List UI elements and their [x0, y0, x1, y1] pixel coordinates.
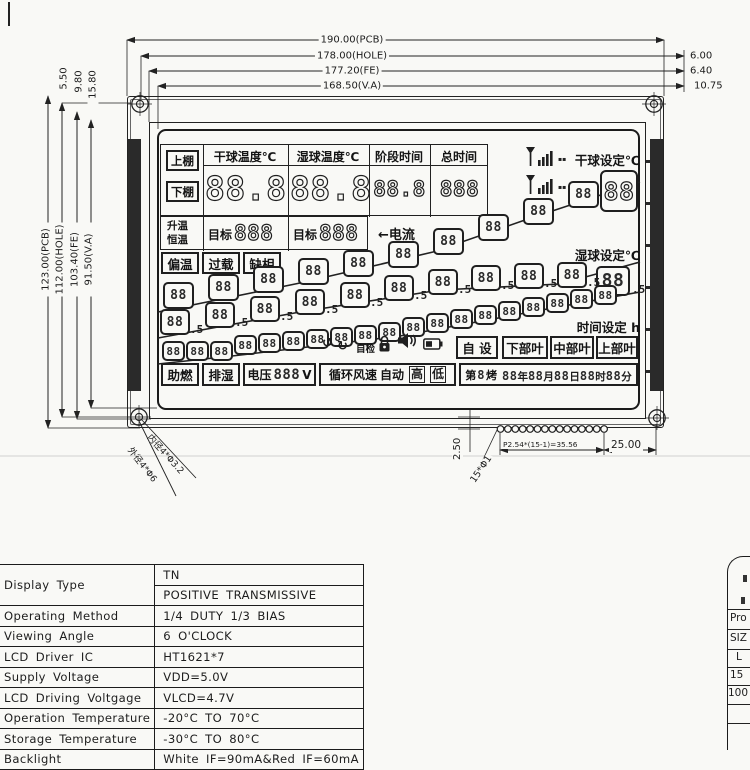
spec-row: Viewing Angle6 O'CLOCK: [0, 626, 363, 647]
dim-pin-gap: 2.50: [452, 436, 463, 462]
row-line: [728, 704, 750, 705]
stage-value-box: 88: [186, 341, 209, 361]
side-table-fragment: Pro: [730, 612, 747, 624]
dim-offset-1: 6.00: [688, 51, 714, 62]
fan-low-badge: 低: [430, 366, 446, 382]
voltage-readout: 电压 888 V: [243, 363, 316, 386]
cut-text-fragment: [743, 575, 747, 582]
dim-va-height: 91.50(V.A): [84, 223, 95, 297]
row-line: [728, 723, 750, 724]
dim-pin-pitch: P2.54*(15-1)=35.56: [501, 441, 580, 449]
fan-speed-readout: 循环风速 自动 高 低: [319, 363, 456, 386]
cut-text-fragment: [741, 597, 745, 604]
spec-value: White IF=90mA&Red IF=60mA: [155, 749, 364, 770]
wet-bulb-display: 88.8: [290, 172, 367, 205]
stage-value-suffix: .5: [280, 310, 293, 323]
stage-value-box: 88: [522, 297, 545, 317]
stage-value-box: 88: [160, 309, 190, 335]
stage-value-box: 88: [258, 333, 281, 353]
target1-label: 目标: [208, 226, 232, 243]
spec-row: BacklightWhite IF=90mA&Red IF=60mA: [0, 749, 363, 770]
alarm-overload: 过载: [202, 252, 240, 274]
spec-label: Storage Temperature: [0, 729, 155, 750]
stage-value-box: 88: [162, 341, 185, 361]
dim-right-margin: 25.00: [609, 440, 643, 452]
spec-row: Operation Temperature-20°C TO 70°C: [0, 708, 363, 729]
dim-offset-3: 10.75: [692, 81, 725, 92]
spec-value: -30°C TO 80°C: [155, 729, 364, 750]
stage-value-box: 88: [388, 241, 419, 268]
voltage-label: 电压: [247, 366, 271, 383]
spec-label: Backlight: [0, 749, 155, 770]
stage-time-header: 阶段时间: [375, 148, 423, 165]
spec-row: Supply VoltageVDD=5.0V: [0, 667, 363, 688]
side-table-fragment: SIZ: [730, 632, 747, 644]
stage-value-suffix: .5: [414, 289, 427, 302]
stage-value-box: 88: [253, 266, 284, 293]
signal2-label: ▪▪: [558, 184, 566, 191]
fan-high-badge: 高: [409, 366, 425, 382]
datetime-unit: 月: [543, 371, 554, 383]
spec-row: Display TypeTN: [0, 565, 363, 586]
stage-value-box: 88: [498, 301, 521, 321]
datetime-digit: 88: [580, 369, 595, 383]
wet-set-suffix: .5: [632, 283, 645, 296]
stage-value-box: 88: [557, 262, 587, 288]
rotate-left-icon: ↺: [322, 336, 333, 351]
dim-top-offset-3: 15.80: [88, 66, 99, 104]
shelf-upper-badge: 上棚: [166, 150, 199, 171]
stage-value-box: 88: [234, 335, 257, 355]
voltage-display: 888: [273, 368, 300, 382]
middle-leaf-badge: 中部叶: [550, 336, 594, 359]
total-time-header: 总时间: [441, 148, 477, 165]
self-check-label: 自检: [356, 341, 375, 355]
spec-label: Viewing Angle: [0, 626, 155, 647]
spec-value: POSITIVE TRANSMISSIVE: [155, 585, 364, 606]
dim-offset-2: 6.40: [688, 66, 714, 77]
target-row: 升温恒温 目标 888 目标 888: [160, 216, 368, 250]
stage-value-box: 88: [433, 228, 464, 255]
rotate-right-icon: ↻: [337, 339, 348, 354]
upper-leaf-badge: 上部叶: [596, 336, 638, 359]
total-time-display: 888: [432, 179, 487, 200]
zebra-tick-left: [136, 160, 141, 163]
mode-rise-label: 升温恒温: [167, 219, 188, 247]
datetime-unit: 年: [517, 371, 528, 383]
datetime-digit: 88: [554, 369, 569, 383]
spec-row: LCD Driver ICHT1621*7: [0, 647, 363, 668]
spec-value: -20°C TO 70°C: [155, 708, 364, 729]
side-title-block: ProSIZL15100: [727, 556, 750, 750]
zebra-tick-left: [136, 244, 141, 247]
side-table-fragment: 100: [728, 687, 748, 699]
zebra-tick-right: [646, 202, 651, 205]
stage-value-box: 88: [546, 293, 569, 313]
datetime-unit: 日: [569, 371, 580, 383]
stage-value-box: 88: [340, 282, 370, 308]
dim-fe-width: 177.20(FE): [323, 66, 382, 77]
datetime-unit: 分: [621, 371, 632, 383]
row-line: [728, 609, 750, 610]
fan-auto-label: 自动: [380, 366, 404, 383]
divider: [288, 217, 289, 251]
stage-value-box: 88: [514, 263, 544, 289]
stage-value-suffix: .5: [190, 323, 203, 336]
stage-value-box: 88: [450, 309, 473, 329]
stage-value-box: 88: [570, 289, 593, 309]
stage-value-box: 88: [478, 214, 509, 241]
stage-value-suffix: .5: [370, 296, 383, 309]
zebra-tick-right: [646, 160, 651, 163]
stage-value-box: 88: [298, 258, 329, 285]
stage-value-suffix: .5: [501, 279, 514, 292]
spec-value: HT1621*7: [155, 647, 364, 668]
stage-value-box: 88: [210, 341, 233, 361]
spec-label: Operation Temperature: [0, 708, 155, 729]
spec-row: Storage Temperature-30°C TO 80°C: [0, 729, 363, 750]
lower-leaf-badge: 下部叶: [502, 336, 548, 359]
zebra-tick-right: [646, 286, 651, 289]
zebra-tick-left: [136, 328, 141, 331]
zebra-tick-left: [136, 370, 141, 373]
stage-value-box: 88: [378, 322, 401, 342]
datetime-display: 88年88月88日88时88分: [502, 365, 632, 384]
stage-value-suffix: .5: [235, 316, 248, 329]
dim-top-offset-1: 5.50: [59, 60, 70, 98]
stage-value-box: 88: [250, 296, 280, 322]
spec-value: 1/4 DUTY 1/3 BIAS: [155, 606, 364, 627]
datetime-unit: 时: [595, 371, 606, 383]
dim-hole-width: 178.00(HOLE): [315, 51, 389, 62]
stage-value-box: 88: [402, 317, 425, 337]
datetime-digit: 88: [606, 369, 621, 383]
side-table-fragment: 15: [730, 669, 743, 681]
spec-row: Operating Method1/4 DUTY 1/3 BIAS: [0, 606, 363, 627]
dim-fe-height: 103.40(FE): [70, 223, 81, 297]
signal-strength-icon: [526, 174, 560, 196]
zebra-tick-left: [136, 286, 141, 289]
battery-icon: [423, 338, 443, 350]
dry-bulb-display: 88.8: [205, 172, 286, 205]
zebra-tick-right: [646, 328, 651, 331]
spec-label: Operating Method: [0, 606, 155, 627]
datetime-digit: 88: [502, 369, 517, 383]
wet-bulb-header: 湿球温度℃: [297, 148, 360, 165]
stage-value-box: 88: [163, 282, 194, 309]
main-readout-cluster: 上棚 下棚 干球温度℃ 湿球温度℃ 阶段时间 总时间 88.8 88.8 88.…: [160, 144, 488, 216]
stage-value-box: 88: [474, 305, 497, 325]
dim-pcb-height: 123.00(PCB): [41, 223, 52, 297]
time-set-label: 时间设定 h: [552, 317, 640, 336]
stage-time-display: 88.8: [371, 179, 428, 200]
stage-value-box: 88: [428, 269, 458, 295]
stage-value-box: 88: [568, 181, 599, 208]
stage-value-box: 88: [471, 265, 501, 291]
spec-label: Display Type: [0, 565, 155, 606]
dim-va-width: 168.50(V.A): [321, 81, 383, 92]
spec-label: LCD Driver IC: [0, 647, 155, 668]
dim-hole-height: 112.00(HOLE): [55, 223, 66, 297]
batch-digit: 8: [477, 369, 485, 381]
stage-value-box: 88: [208, 274, 239, 301]
stage-value-box: 88: [523, 198, 554, 225]
auto-set-button: 自 设: [456, 336, 498, 359]
dim-top-offset-2: 9.80: [74, 63, 85, 101]
divider: [203, 217, 204, 251]
stage-value-box: 88: [594, 285, 617, 305]
target2-label: 目标: [293, 226, 317, 243]
shelf-lower-badge: 下棚: [166, 181, 199, 202]
target1-display: 888: [234, 223, 273, 244]
batch-suffix: 烤: [486, 367, 497, 383]
dry-set-label: 干球设定℃: [552, 150, 640, 169]
dry-set-display: 88: [600, 170, 638, 212]
spec-value: TN: [155, 565, 364, 586]
zebra-tick-right: [646, 244, 651, 247]
stage-value-box: 88: [384, 275, 414, 301]
dehumidify-badge: 排湿: [202, 363, 240, 386]
zebra-tick-left: [136, 202, 141, 205]
stage-value-box: 88: [205, 302, 235, 328]
target2-display: 888: [319, 223, 358, 244]
datetime-digit: 88: [528, 369, 543, 383]
spec-row: LCD Driving VoltgageVLCD=4.7V: [0, 688, 363, 709]
stage-value-box: 88: [295, 289, 325, 315]
row-line: [728, 629, 750, 630]
dry-bulb-header: 干球温度℃: [214, 148, 277, 165]
boost-badge: 助燃: [161, 363, 199, 386]
spec-value: 6 O'CLOCK: [155, 626, 364, 647]
header-underline: [203, 165, 487, 166]
side-table-fragment: L: [736, 651, 742, 663]
stage-value-suffix: .5: [458, 283, 471, 296]
spec-table: Display TypeTNPOSITIVE TRANSMISSIVEOpera…: [0, 564, 358, 770]
spec-value: VLCD=4.7V: [155, 688, 364, 709]
spec-value: VDD=5.0V: [155, 667, 364, 688]
zebra-tick-right: [646, 370, 651, 373]
spec-label: Supply Voltage: [0, 667, 155, 688]
spec-label: LCD Driving Voltgage: [0, 688, 155, 709]
dim-pcb-width: 190.00(PCB): [319, 35, 386, 46]
stage-value-box: 88: [343, 250, 374, 277]
batch-prefix: 第: [465, 367, 476, 383]
stage-value-box: 88: [282, 331, 305, 351]
batch-datetime-readout: 第 8 烤 88年88月88日88时88分: [459, 363, 638, 386]
stage-value-suffix: .5: [325, 303, 338, 316]
fan-label: 循环风速: [329, 366, 377, 383]
stage-value-box: 88: [426, 313, 449, 333]
voltage-unit: V: [302, 368, 311, 382]
stage-value-suffix: .5: [544, 277, 557, 290]
alarm-temp-deviation: 偏温: [161, 252, 199, 274]
